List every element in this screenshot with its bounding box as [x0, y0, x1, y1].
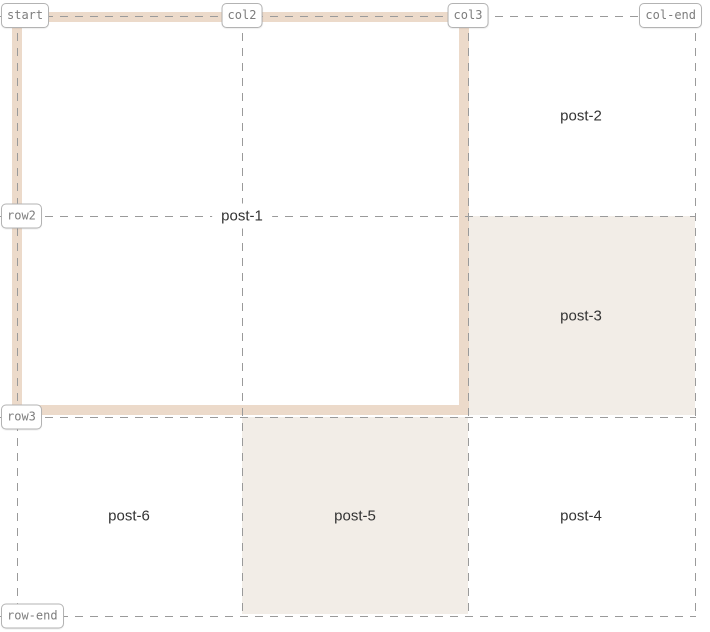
- area-label-post-4: post-4: [551, 504, 611, 529]
- area-label-post-1: post-1: [212, 204, 272, 229]
- grid-col-line-start: [17, 3, 18, 616]
- line-label-row2: row2: [1, 204, 42, 229]
- grid-row-line-row-end: [0, 616, 696, 617]
- area-label-post-2: post-2: [551, 104, 611, 129]
- line-label-row3: row3: [1, 405, 42, 430]
- grid-inspector-overlay: start col2 col3 col-end row2 row3 row-en…: [0, 0, 710, 632]
- line-label-start: start: [1, 3, 49, 28]
- grid-row-line-row2: [0, 216, 696, 217]
- grid-col-line-col2: [242, 3, 243, 616]
- area-label-post-5: post-5: [325, 504, 385, 529]
- line-label-col3: col3: [448, 3, 489, 28]
- grid-col-line-col-end: [695, 3, 696, 616]
- grid-row-line-row3: [0, 417, 696, 418]
- grid-row-line-start: [0, 16, 696, 17]
- line-label-col-end: col-end: [639, 3, 702, 28]
- area-label-post-3: post-3: [551, 304, 611, 329]
- line-label-col2: col2: [222, 3, 263, 28]
- line-label-row-end: row-end: [1, 604, 64, 629]
- grid-col-line-col3: [468, 3, 469, 616]
- area-label-post-6: post-6: [99, 504, 159, 529]
